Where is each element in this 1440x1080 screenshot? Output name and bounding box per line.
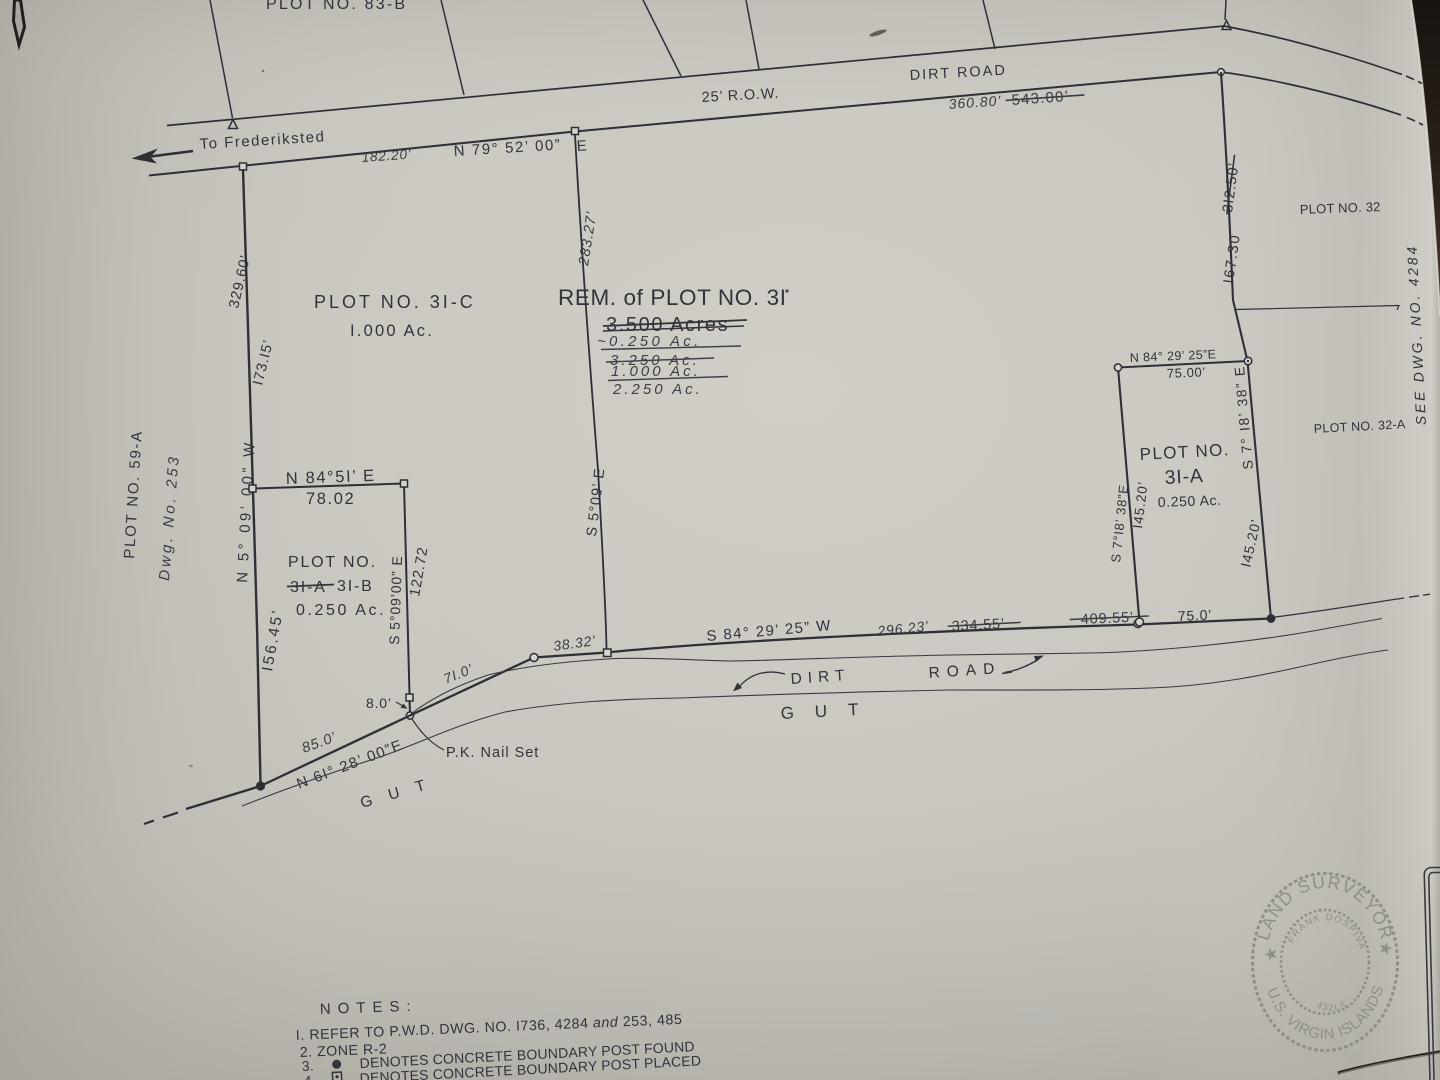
svg-text:PLOT NO.: PLOT NO. — [288, 554, 377, 571]
svg-text:I.000 Ac.: I.000 Ac. — [350, 322, 434, 340]
svg-text:PLOT NO. 3I-C: PLOT NO. 3I-C — [314, 292, 476, 312]
svg-text:78.02: 78.02 — [306, 490, 355, 508]
svg-text:0.250 Ac.: 0.250 Ac. — [296, 602, 386, 619]
svg-text:3I-B: 3I-B — [337, 578, 374, 595]
svg-text:N 84°5I’ E: N 84°5I’ E — [286, 467, 376, 488]
svg-text:3I-A: 3I-A — [290, 579, 327, 596]
svg-text:2.250 Ac.: 2.250 Ac. — [612, 381, 703, 398]
svg-text:8.0’: 8.0’ — [366, 695, 392, 711]
svg-text:S 5°09’00” E: S 5°09’00” E — [386, 555, 405, 645]
svg-text:REM. of PLOT NO. 3I: REM. of PLOT NO. 3I — [558, 285, 787, 310]
svg-text:PLOT NO. 32: PLOT NO. 32 — [1300, 199, 1381, 217]
svg-text:4.: 4. — [303, 1072, 316, 1080]
svg-text:75.0’: 75.0’ — [1177, 607, 1212, 624]
svg-text:3.: 3. — [301, 1057, 314, 1074]
svg-text:E: E — [576, 137, 587, 155]
svg-text:NOTES:: NOTES: — [320, 998, 418, 1018]
svg-text:PLOT NO. 83-B: PLOT NO. 83-B — [266, 0, 407, 13]
svg-text:P.K. Nail Set: P.K. Nail Set — [446, 745, 539, 761]
svg-text:3I-A: 3I-A — [1164, 465, 1204, 489]
svg-text:75.00’: 75.00’ — [1166, 364, 1206, 381]
svg-text:0.250 Ac.: 0.250 Ac. — [1158, 492, 1222, 510]
